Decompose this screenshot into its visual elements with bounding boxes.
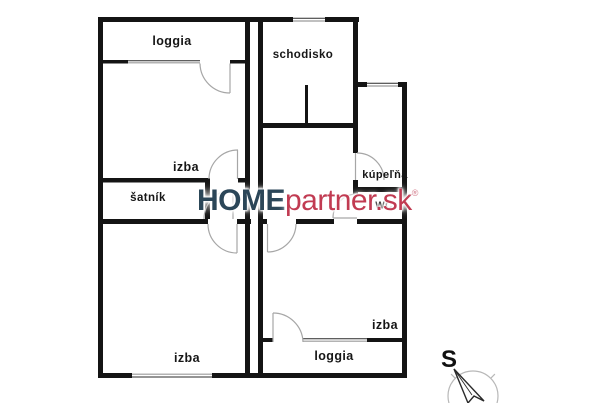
wall-left <box>98 17 103 378</box>
room-label-loggia-top: loggia <box>152 34 191 48</box>
wall-right-lower <box>402 82 407 378</box>
registered-trademark-icon: ® <box>412 188 419 198</box>
compass-needle-icon <box>454 369 484 403</box>
room-label-izba-top: izba <box>173 160 199 174</box>
brand-watermark: HOMEpartner.sk® <box>197 185 418 217</box>
brand-watermark-secondary: partner.sk <box>285 184 412 217</box>
wall-right-upper <box>353 17 358 87</box>
room-label-izba-bottom-right: izba <box>372 318 398 332</box>
room-label-satnik: šatník <box>130 192 166 204</box>
wall-stair-stub <box>305 85 308 128</box>
floorplan-page: loggia schodisko izba šatník kúpeľňa WC … <box>0 0 600 403</box>
room-label-loggia-bottom: loggia <box>314 349 353 363</box>
room-label-kupelna: kúpeľňa <box>362 169 408 181</box>
compass-rose-icon <box>448 369 498 403</box>
compass-north-label: S <box>441 346 457 374</box>
room-label-schodisko: schodisko <box>273 49 333 61</box>
room-label-izba-bottom-left: izba <box>174 351 200 365</box>
brand-watermark-primary: HOME <box>197 184 285 217</box>
